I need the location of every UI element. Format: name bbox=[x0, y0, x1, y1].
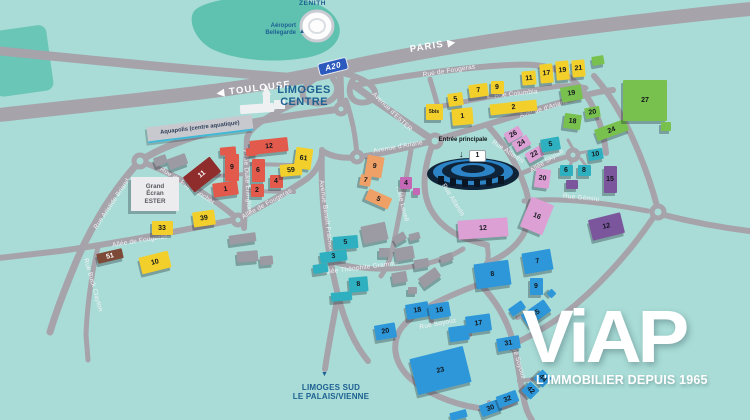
building-number: 9 bbox=[495, 84, 499, 91]
building-number: 12 bbox=[601, 222, 610, 231]
building-20[interactable]: 20 bbox=[373, 322, 396, 340]
building-number: 12 bbox=[265, 142, 273, 150]
building-20[interactable]: 20 bbox=[533, 168, 550, 189]
building-16[interactable]: 16 bbox=[427, 301, 450, 319]
building-6[interactable]: 6 bbox=[252, 159, 265, 182]
building-number: 27 bbox=[641, 97, 649, 104]
building-2[interactable]: 2 bbox=[251, 184, 264, 197]
entrance-arrow-icon: ↓ bbox=[459, 149, 464, 159]
building-18[interactable]: 18 bbox=[563, 112, 582, 129]
building-number: 7 bbox=[362, 176, 367, 184]
building-7[interactable]: 7 bbox=[468, 82, 489, 98]
map-widget: Aquapolis (centre aquatique) Grand Écran… bbox=[0, 0, 750, 420]
building-number: 5 bbox=[547, 140, 552, 148]
building-number: 17 bbox=[542, 69, 550, 77]
building-17[interactable]: 17 bbox=[539, 63, 554, 83]
building-number: 8 bbox=[356, 280, 361, 287]
entrance-badge[interactable]: 1 bbox=[469, 150, 486, 162]
building-number: 4 bbox=[404, 180, 408, 187]
building-number: 9 bbox=[230, 164, 234, 171]
building-number: 5 bbox=[375, 195, 381, 203]
building-number: 39 bbox=[200, 214, 209, 222]
building-number: 8 bbox=[490, 270, 495, 277]
building-8[interactable]: 8 bbox=[348, 276, 368, 293]
building-number: 6 bbox=[256, 167, 260, 174]
building-number: 20 bbox=[538, 174, 547, 182]
building-number: 18 bbox=[413, 306, 422, 314]
building[interactable] bbox=[413, 188, 420, 195]
building-5[interactable]: 5 bbox=[540, 136, 561, 152]
building-number: 19 bbox=[567, 89, 576, 97]
building-number: 31 bbox=[504, 339, 513, 347]
zenith-label: ZENITH bbox=[299, 0, 326, 7]
building-number: 24 bbox=[606, 125, 616, 134]
building-10[interactable]: 10 bbox=[587, 147, 604, 160]
building-number: 9 bbox=[371, 162, 376, 170]
building-number: 10 bbox=[150, 258, 159, 267]
building-9[interactable]: 9 bbox=[491, 81, 504, 94]
building[interactable] bbox=[312, 263, 328, 274]
building-number: 6 bbox=[564, 167, 568, 174]
building-number: 30 bbox=[485, 403, 495, 412]
building-number: 7 bbox=[476, 86, 481, 93]
building[interactable] bbox=[379, 248, 390, 257]
building-8[interactable]: 8 bbox=[473, 259, 511, 289]
zenith-hall bbox=[301, 11, 333, 41]
building[interactable] bbox=[245, 148, 257, 157]
building-18[interactable]: 18 bbox=[404, 301, 429, 320]
building-number: 2 bbox=[255, 187, 259, 194]
building[interactable] bbox=[391, 270, 408, 283]
building-number: 11 bbox=[525, 74, 533, 82]
building-number: 5 bbox=[343, 238, 348, 245]
building-number: 9 bbox=[534, 283, 538, 290]
building-33[interactable]: 33 bbox=[152, 221, 173, 235]
building-39[interactable]: 39 bbox=[192, 209, 216, 227]
building-5[interactable]: 5 bbox=[447, 92, 464, 107]
building[interactable] bbox=[413, 257, 429, 268]
viap-brand: ViAP bbox=[522, 306, 717, 369]
building-number: 1 bbox=[223, 185, 228, 192]
limoges-centre-label: LIMOGES CENTRE bbox=[268, 84, 340, 108]
building[interactable] bbox=[408, 287, 417, 294]
building[interactable] bbox=[236, 250, 258, 263]
building-12[interactable]: 12 bbox=[457, 217, 508, 239]
sud-direction-icon: ▼ bbox=[321, 371, 328, 378]
building-number: 12 bbox=[479, 224, 487, 232]
building-number: 32 bbox=[502, 394, 512, 403]
building-number: 21 bbox=[574, 64, 582, 72]
building-number: 3 bbox=[331, 252, 336, 259]
building-number: 7 bbox=[534, 257, 539, 265]
building-number: 15 bbox=[606, 176, 614, 183]
building-7[interactable]: 7 bbox=[359, 174, 372, 187]
building-number: 16 bbox=[532, 211, 542, 220]
building-number: 22 bbox=[529, 149, 539, 159]
building[interactable] bbox=[566, 180, 578, 189]
viap-logo: ViAP L'IMMOBILIER DEPUIS 1965 bbox=[522, 306, 708, 387]
building-number: 20 bbox=[381, 327, 390, 335]
building-9[interactable]: 9 bbox=[530, 278, 543, 295]
main-entrance-label: Entrée principale bbox=[438, 137, 488, 144]
building-number: 5 bbox=[453, 95, 458, 102]
building-number: 61 bbox=[299, 154, 308, 162]
grand-ecran-label: Grand Écran ESTER bbox=[138, 183, 172, 205]
building-59[interactable]: 59 bbox=[280, 163, 303, 177]
building[interactable] bbox=[448, 324, 470, 342]
building-11[interactable]: 11 bbox=[521, 70, 536, 85]
building-8[interactable]: 8 bbox=[578, 165, 591, 176]
building-27[interactable]: 27 bbox=[623, 80, 667, 121]
building[interactable] bbox=[661, 122, 671, 131]
building-21[interactable]: 21 bbox=[571, 59, 585, 77]
building-number: 11 bbox=[197, 169, 207, 179]
building-number: 19 bbox=[558, 66, 566, 74]
building-number: 2 bbox=[511, 103, 516, 110]
limoges-centre-line1: LIMOGES bbox=[268, 84, 340, 96]
building-9[interactable]: 9 bbox=[225, 154, 239, 181]
building-number: 51 bbox=[105, 252, 114, 261]
building-number: 18 bbox=[568, 117, 577, 125]
building-number: 24 bbox=[516, 138, 526, 148]
building-6[interactable]: 6 bbox=[560, 165, 573, 176]
building-20[interactable]: 20 bbox=[584, 105, 601, 118]
building-4[interactable]: 4 bbox=[400, 177, 412, 189]
building-7[interactable]: 7 bbox=[521, 248, 553, 274]
building-5bis[interactable]: 5bis bbox=[426, 104, 443, 120]
building-19[interactable]: 19 bbox=[559, 84, 582, 102]
building-number: 26 bbox=[508, 129, 518, 139]
limoges-centre-line2: CENTRE bbox=[268, 96, 340, 108]
limoges-sud-line2: LE PALAIS/VIENNE bbox=[281, 393, 381, 402]
building-number: 8 bbox=[582, 167, 586, 174]
building-number: 59 bbox=[287, 166, 295, 174]
airport-marker-icon: ▲ bbox=[299, 29, 305, 35]
building-1[interactable]: 1 bbox=[451, 107, 473, 126]
building-number: 20 bbox=[588, 108, 597, 116]
building[interactable] bbox=[330, 291, 352, 302]
building[interactable] bbox=[259, 255, 273, 265]
building-15[interactable]: 15 bbox=[604, 166, 617, 193]
building-number: 4 bbox=[274, 178, 278, 185]
building-number: 10 bbox=[591, 150, 600, 158]
building-number: 16 bbox=[435, 306, 444, 314]
limoges-sud-label: LIMOGES SUD LE PALAIS/VIENNE bbox=[281, 384, 381, 402]
grand-ecran-building[interactable]: Grand Écran ESTER bbox=[131, 177, 179, 211]
building[interactable] bbox=[591, 55, 604, 66]
building-number: 5bis bbox=[429, 110, 439, 115]
building-number: 1 bbox=[460, 112, 465, 119]
building-5[interactable]: 5 bbox=[332, 234, 358, 249]
airport-label: Aéroport Bellegarde bbox=[256, 23, 296, 37]
building-number: 23 bbox=[435, 366, 444, 375]
building-19[interactable]: 19 bbox=[555, 60, 570, 80]
building-number: 17 bbox=[474, 319, 483, 327]
building[interactable] bbox=[394, 245, 415, 261]
building-number: 33 bbox=[158, 225, 166, 232]
